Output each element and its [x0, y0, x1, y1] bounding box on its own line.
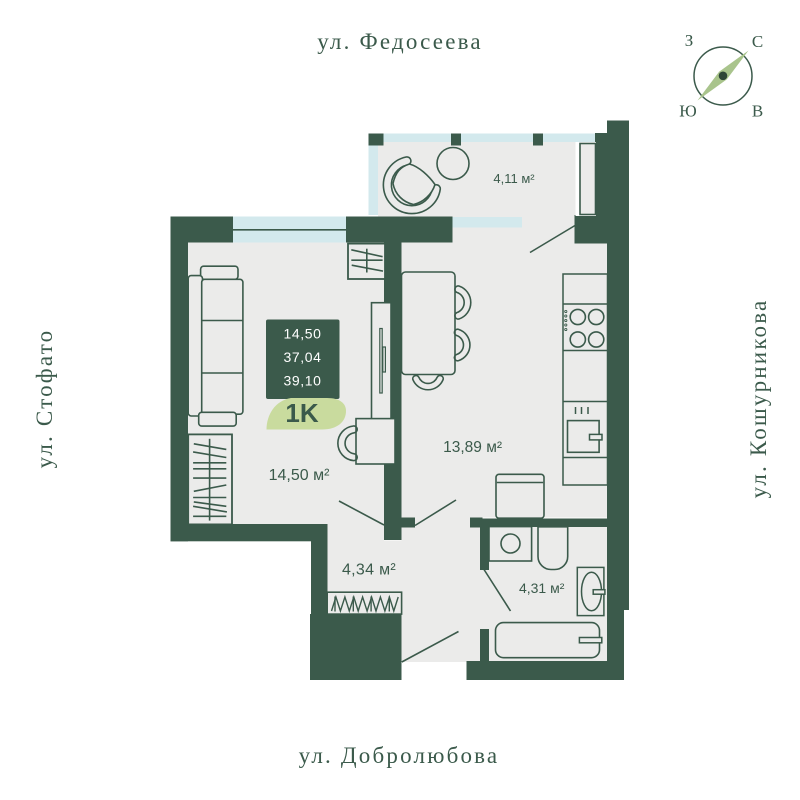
svg-text:В: В	[752, 102, 763, 121]
svg-text:4,11 м²: 4,11 м²	[493, 171, 535, 186]
svg-text:З: З	[685, 31, 694, 50]
svg-text:С: С	[752, 32, 763, 51]
svg-text:39,10: 39,10	[283, 373, 321, 389]
svg-text:14,50: 14,50	[283, 326, 321, 342]
svg-text:Ю: Ю	[679, 102, 696, 121]
svg-text:1K: 1K	[285, 398, 318, 428]
svg-text:37,04: 37,04	[283, 349, 321, 365]
svg-text:4,34 м²: 4,34 м²	[342, 561, 396, 578]
svg-text:ул. Кошурникова: ул. Кошурникова	[746, 299, 771, 499]
svg-text:4,31 м²: 4,31 м²	[519, 580, 565, 596]
svg-text:14,50 м²: 14,50 м²	[269, 467, 330, 484]
svg-text:13,89 м²: 13,89 м²	[443, 439, 502, 456]
svg-text:ул. Добролюбова: ул. Добролюбова	[299, 743, 500, 768]
svg-text:ул. Стофато: ул. Стофато	[32, 329, 57, 469]
svg-text:ул. Федосеева: ул. Федосеева	[317, 29, 483, 54]
